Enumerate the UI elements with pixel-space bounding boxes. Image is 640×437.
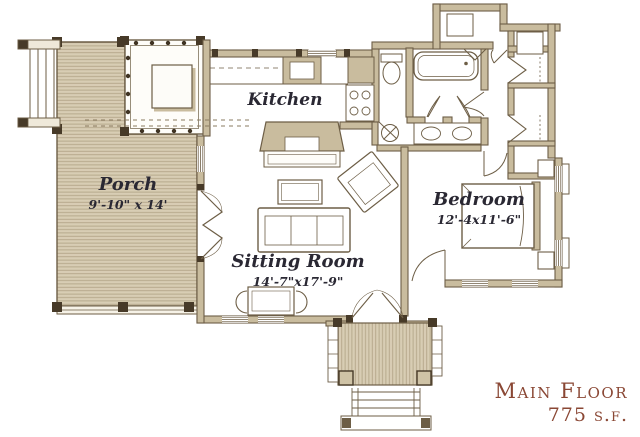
toilet-tank (381, 54, 402, 62)
vanity-sink-2 (453, 127, 472, 140)
floor-plan: Kitchen Porch 9'-10" x 14' Sitting Room … (0, 0, 640, 437)
step-treads (30, 49, 54, 118)
hall-top-door (491, 50, 507, 63)
hearth (264, 151, 340, 167)
wall-utility-closet (372, 122, 378, 145)
nightstand-2 (538, 252, 554, 269)
closet-bifold-2 (508, 115, 526, 143)
entry-post-nw (333, 318, 342, 327)
entry-post-ne (428, 318, 437, 327)
hall-closets (447, 14, 543, 176)
wall-kitchen-left-upper (203, 40, 210, 136)
window-sitting-1 (222, 316, 248, 323)
french-doors (352, 290, 403, 318)
window-bedroom-south-2 (512, 280, 538, 287)
firebox (285, 137, 319, 151)
wall-bump-top (433, 4, 507, 11)
window-bedroom-east-1 (555, 164, 569, 194)
window-bedroom-south-1 (462, 280, 488, 287)
wall-kitchen-top-a (210, 50, 308, 57)
entry-porch (328, 290, 442, 430)
wall-bath-cross-c (469, 117, 481, 123)
wall-hall-left-a (481, 49, 488, 90)
wall-bump-left (433, 4, 440, 49)
range (346, 85, 374, 121)
porch-steps-west (18, 40, 60, 127)
wall-hall-left-b (481, 118, 488, 145)
closet-shelf-1 (447, 14, 473, 36)
closet-bifold-1 (508, 57, 526, 83)
wall-bath-cross-a (407, 117, 425, 123)
refrigerator (348, 57, 374, 83)
floor-area: 775 s.f. (495, 404, 628, 426)
fireplace (260, 122, 344, 167)
window-kitchen (308, 50, 336, 57)
wall-bath-cross-b (443, 117, 452, 123)
nightstand-1 (538, 160, 554, 177)
dining-chair-right (296, 291, 307, 313)
window-porch-wall (197, 146, 204, 172)
dining-chair-left (236, 291, 247, 313)
window-bedroom-east-2 (555, 238, 569, 268)
wall-sitting-bedroom-divider (401, 147, 408, 316)
window-sitting-2 (258, 316, 284, 323)
wall-left-b (197, 258, 204, 323)
bath-door-leaves (427, 92, 484, 117)
wall-closet-div-c (508, 141, 555, 146)
entry-rail-east (432, 326, 442, 376)
vanity-sink-1 (422, 127, 441, 140)
screened-porch (120, 36, 205, 136)
wall-right-upper (548, 24, 555, 158)
closet-shelf-2 (517, 32, 543, 54)
wall-fireplace-flank (340, 122, 372, 129)
bedroom-door (412, 250, 445, 281)
entry-post-se (417, 371, 431, 385)
floor-title: Main Floor (495, 379, 628, 403)
entry-post-sw (339, 371, 353, 385)
wall-toilet-divider (406, 48, 413, 117)
porch-table (152, 65, 192, 108)
bathtub (414, 52, 478, 80)
wall-kitchen-top-b (336, 50, 374, 57)
sitting-room-furniture (201, 151, 399, 315)
wall-closet-left-a (508, 31, 514, 57)
bathroom-fixtures (379, 52, 484, 144)
tub-drain (464, 62, 468, 66)
entry-steps (341, 388, 431, 430)
armchair (337, 151, 399, 213)
wall-closet-div-b (508, 83, 555, 88)
kitchen-sink (290, 62, 314, 79)
wall-bath-bottom (377, 145, 481, 151)
title-block: Main Floor 775 s.f. (495, 379, 628, 426)
floor-plan-drawing (0, 0, 640, 437)
toilet-bowl (383, 62, 400, 84)
hall-bedroom-door (484, 151, 507, 176)
